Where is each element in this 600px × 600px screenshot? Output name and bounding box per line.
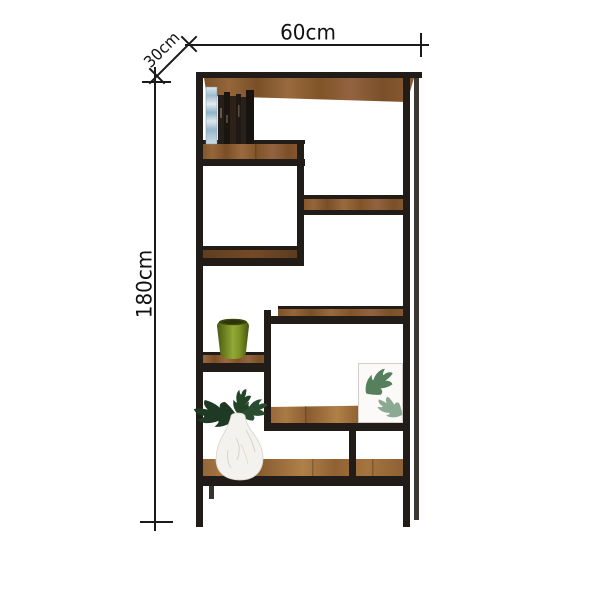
- height-dimension-label: 180cm: [135, 250, 156, 318]
- books: [206, 87, 254, 144]
- leaf-print-frame: [359, 364, 407, 423]
- shelf-5-right: [278, 309, 410, 317]
- right-front-post: [403, 72, 410, 527]
- right-back-post: [414, 75, 419, 520]
- shelf-4-left: [200, 250, 304, 259]
- top-rail: [196, 72, 422, 78]
- blue-book: [206, 87, 217, 144]
- dimension-annotations: [141, 34, 428, 530]
- product-dimension-image: 60cm 30cm 180cm: [0, 0, 600, 600]
- shelf-unit-drawing: [0, 0, 600, 600]
- shelf-3-right: [300, 198, 410, 211]
- width-dimension-label: 60cm: [280, 23, 336, 44]
- green-vase: [217, 319, 249, 359]
- shelf-2-left: [200, 144, 304, 160]
- left-back-leg: [209, 486, 214, 499]
